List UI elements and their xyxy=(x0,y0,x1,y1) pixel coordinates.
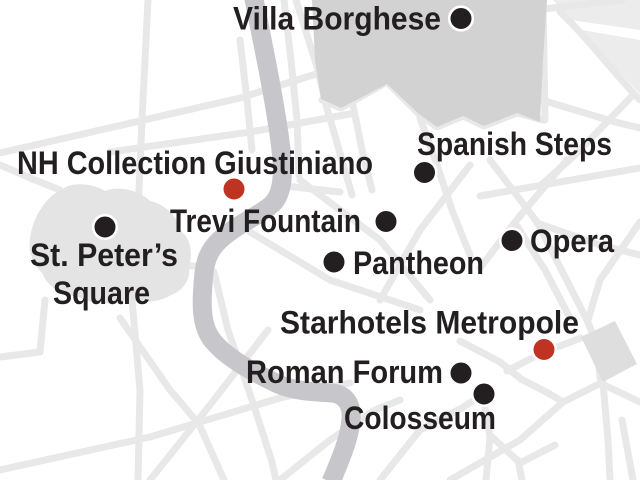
svg-text:Spanish Steps: Spanish Steps xyxy=(417,126,612,162)
svg-text:Villa Borghese: Villa Borghese xyxy=(233,1,441,37)
svg-text:Pantheon: Pantheon xyxy=(353,245,484,281)
svg-text:Starhotels Metropole: Starhotels Metropole xyxy=(280,305,579,341)
svg-text:St. Peter’s: St. Peter’s xyxy=(30,237,178,273)
svg-text:Colosseum: Colosseum xyxy=(344,400,496,436)
svg-text:Trevi Fountain: Trevi Fountain xyxy=(170,203,361,239)
svg-text:Square: Square xyxy=(53,275,150,311)
svg-text:Roman Forum: Roman Forum xyxy=(246,354,443,390)
svg-text:Opera: Opera xyxy=(530,223,614,259)
svg-text:NH Collection Giustiniano: NH Collection Giustiniano xyxy=(17,145,373,181)
